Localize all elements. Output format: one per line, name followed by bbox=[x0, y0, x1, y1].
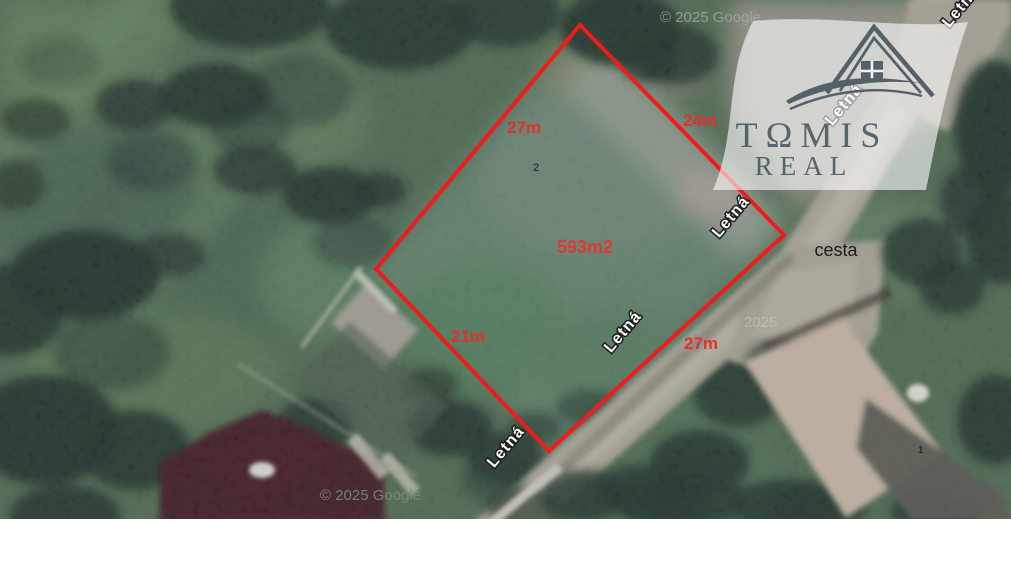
svg-text:2025: 2025 bbox=[744, 314, 777, 331]
svg-text:TΩMIS: TΩMIS bbox=[736, 115, 889, 155]
svg-text:27m: 27m bbox=[684, 334, 718, 353]
svg-text:24m: 24m bbox=[683, 111, 717, 130]
svg-text:21m: 21m bbox=[451, 327, 485, 346]
svg-text:27m: 27m bbox=[507, 118, 541, 137]
svg-text:593m2: 593m2 bbox=[557, 237, 613, 257]
svg-text:2: 2 bbox=[533, 162, 539, 174]
svg-text:1: 1 bbox=[918, 445, 924, 456]
svg-text:REAL: REAL bbox=[755, 151, 854, 181]
svg-text:© 2025 Google: © 2025 Google bbox=[320, 487, 421, 504]
svg-text:cesta: cesta bbox=[814, 240, 858, 260]
svg-text:© 2025 Google: © 2025 Google bbox=[660, 9, 761, 26]
